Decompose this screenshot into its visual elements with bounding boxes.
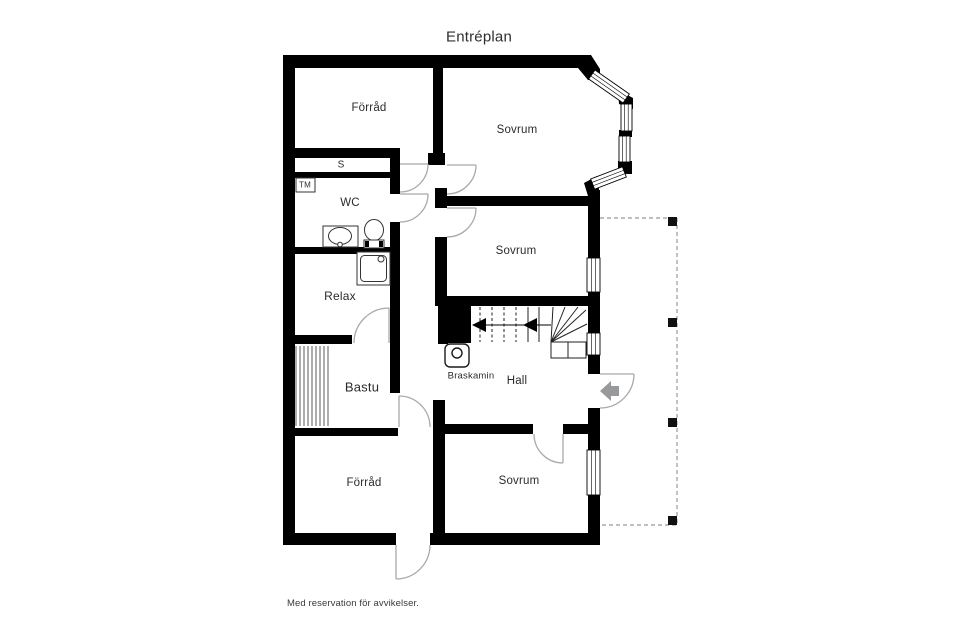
window-icon	[587, 258, 600, 292]
exterior-door-arc	[396, 545, 430, 579]
staircase	[475, 307, 587, 358]
sink-icon	[323, 226, 358, 247]
terrace-outline	[600, 218, 677, 525]
floor-plan-title: Entréplan	[446, 29, 512, 46]
room-label-sovrum-bottom: Sovrum	[499, 475, 540, 487]
door-arc	[400, 164, 428, 192]
room-label-closet: S	[338, 160, 345, 171]
bay-window-icon	[591, 167, 627, 189]
bay-window-icon	[621, 104, 632, 131]
window-icon	[587, 450, 600, 495]
room-label-forrad-bottom: Förråd	[346, 477, 381, 489]
door-arc	[447, 165, 476, 194]
room-label-sovrum-mid: Sovrum	[496, 245, 537, 257]
door-arc	[400, 194, 428, 222]
terrace-posts	[668, 217, 677, 525]
window-icon	[587, 333, 600, 355]
room-label-washing-machine: TM	[299, 181, 311, 190]
door-arc	[534, 434, 563, 463]
shower-icon	[357, 249, 390, 285]
room-label-forrad-top: Förråd	[351, 102, 386, 114]
room-label-braskamin: Braskamin	[448, 371, 495, 382]
entry-arrow-icon	[600, 381, 619, 401]
floor-plan-drawing	[0, 0, 960, 640]
bay-window-icon	[589, 70, 630, 103]
disclaimer-text: Med reservation för avvikelser.	[287, 598, 419, 609]
room-label-relax: Relax	[324, 289, 356, 303]
wood-stove-icon	[445, 344, 469, 367]
door-arc	[399, 396, 430, 427]
door-arc	[447, 208, 476, 237]
room-label-wc: WC	[340, 197, 360, 209]
toilet-icon	[364, 220, 384, 249]
sauna-benches	[296, 346, 328, 426]
room-label-sovrum-top: Sovrum	[497, 124, 538, 136]
bay-window-icon	[619, 136, 630, 162]
room-label-bastu: Bastu	[345, 380, 379, 395]
door-arc	[354, 308, 389, 343]
floor-plan-page: Entréplan Förråd Sovrum S TM WC Relax So…	[0, 0, 960, 640]
room-label-hall: Hall	[507, 375, 528, 387]
